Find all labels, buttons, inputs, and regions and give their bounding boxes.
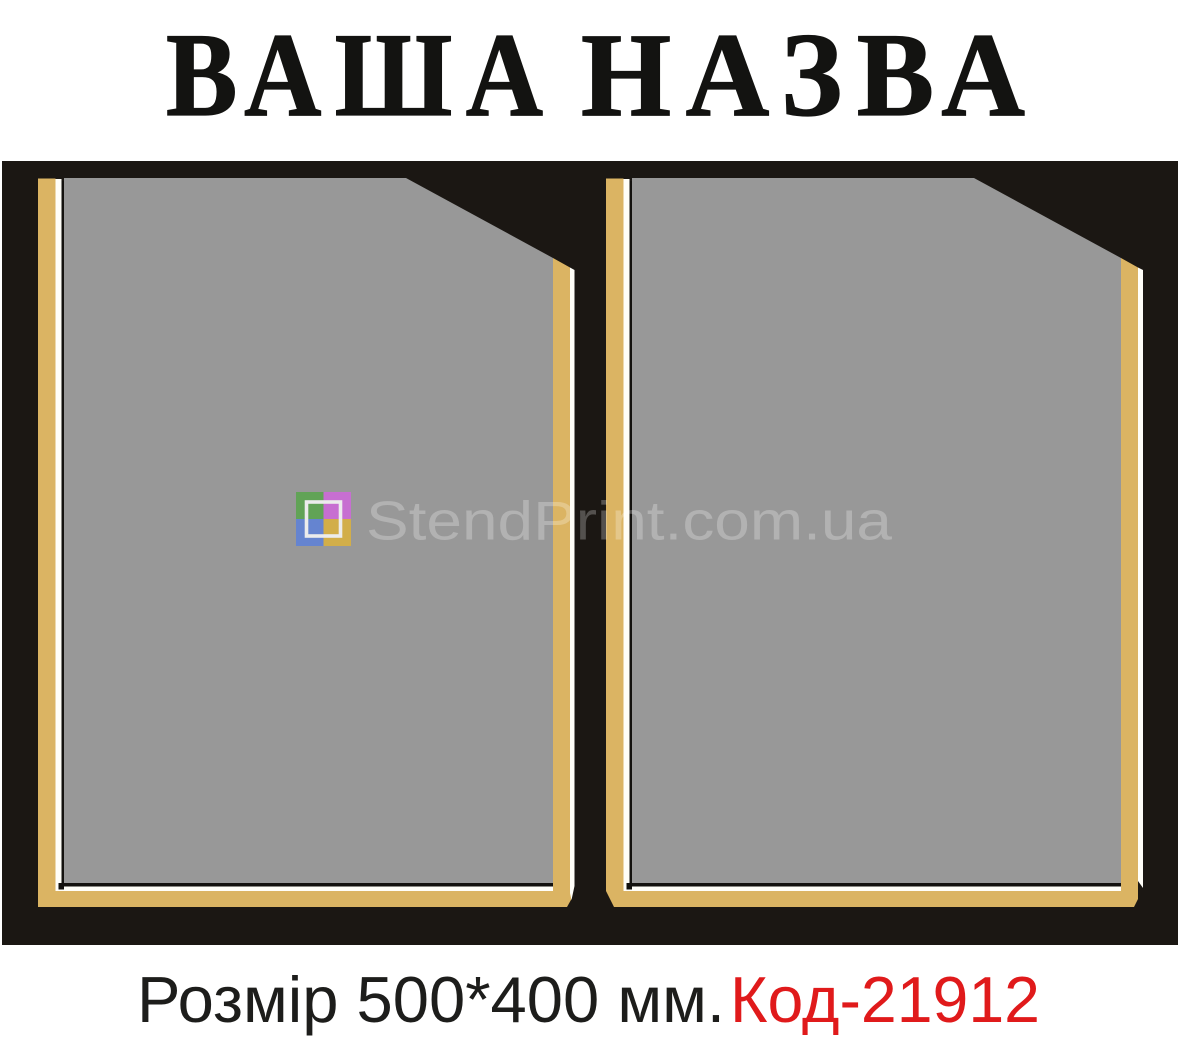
svg-text:НАЗВА: НАЗВА: [581, 9, 1040, 141]
svg-text:ВАША: ВАША: [166, 9, 557, 141]
svg-text:StendPrint.com.ua: StendPrint.com.ua: [366, 490, 892, 552]
svg-text:Код-21912: Код-21912: [730, 963, 1040, 1036]
svg-text:Розмір 500*400 мм.: Розмір 500*400 мм.: [137, 963, 725, 1036]
